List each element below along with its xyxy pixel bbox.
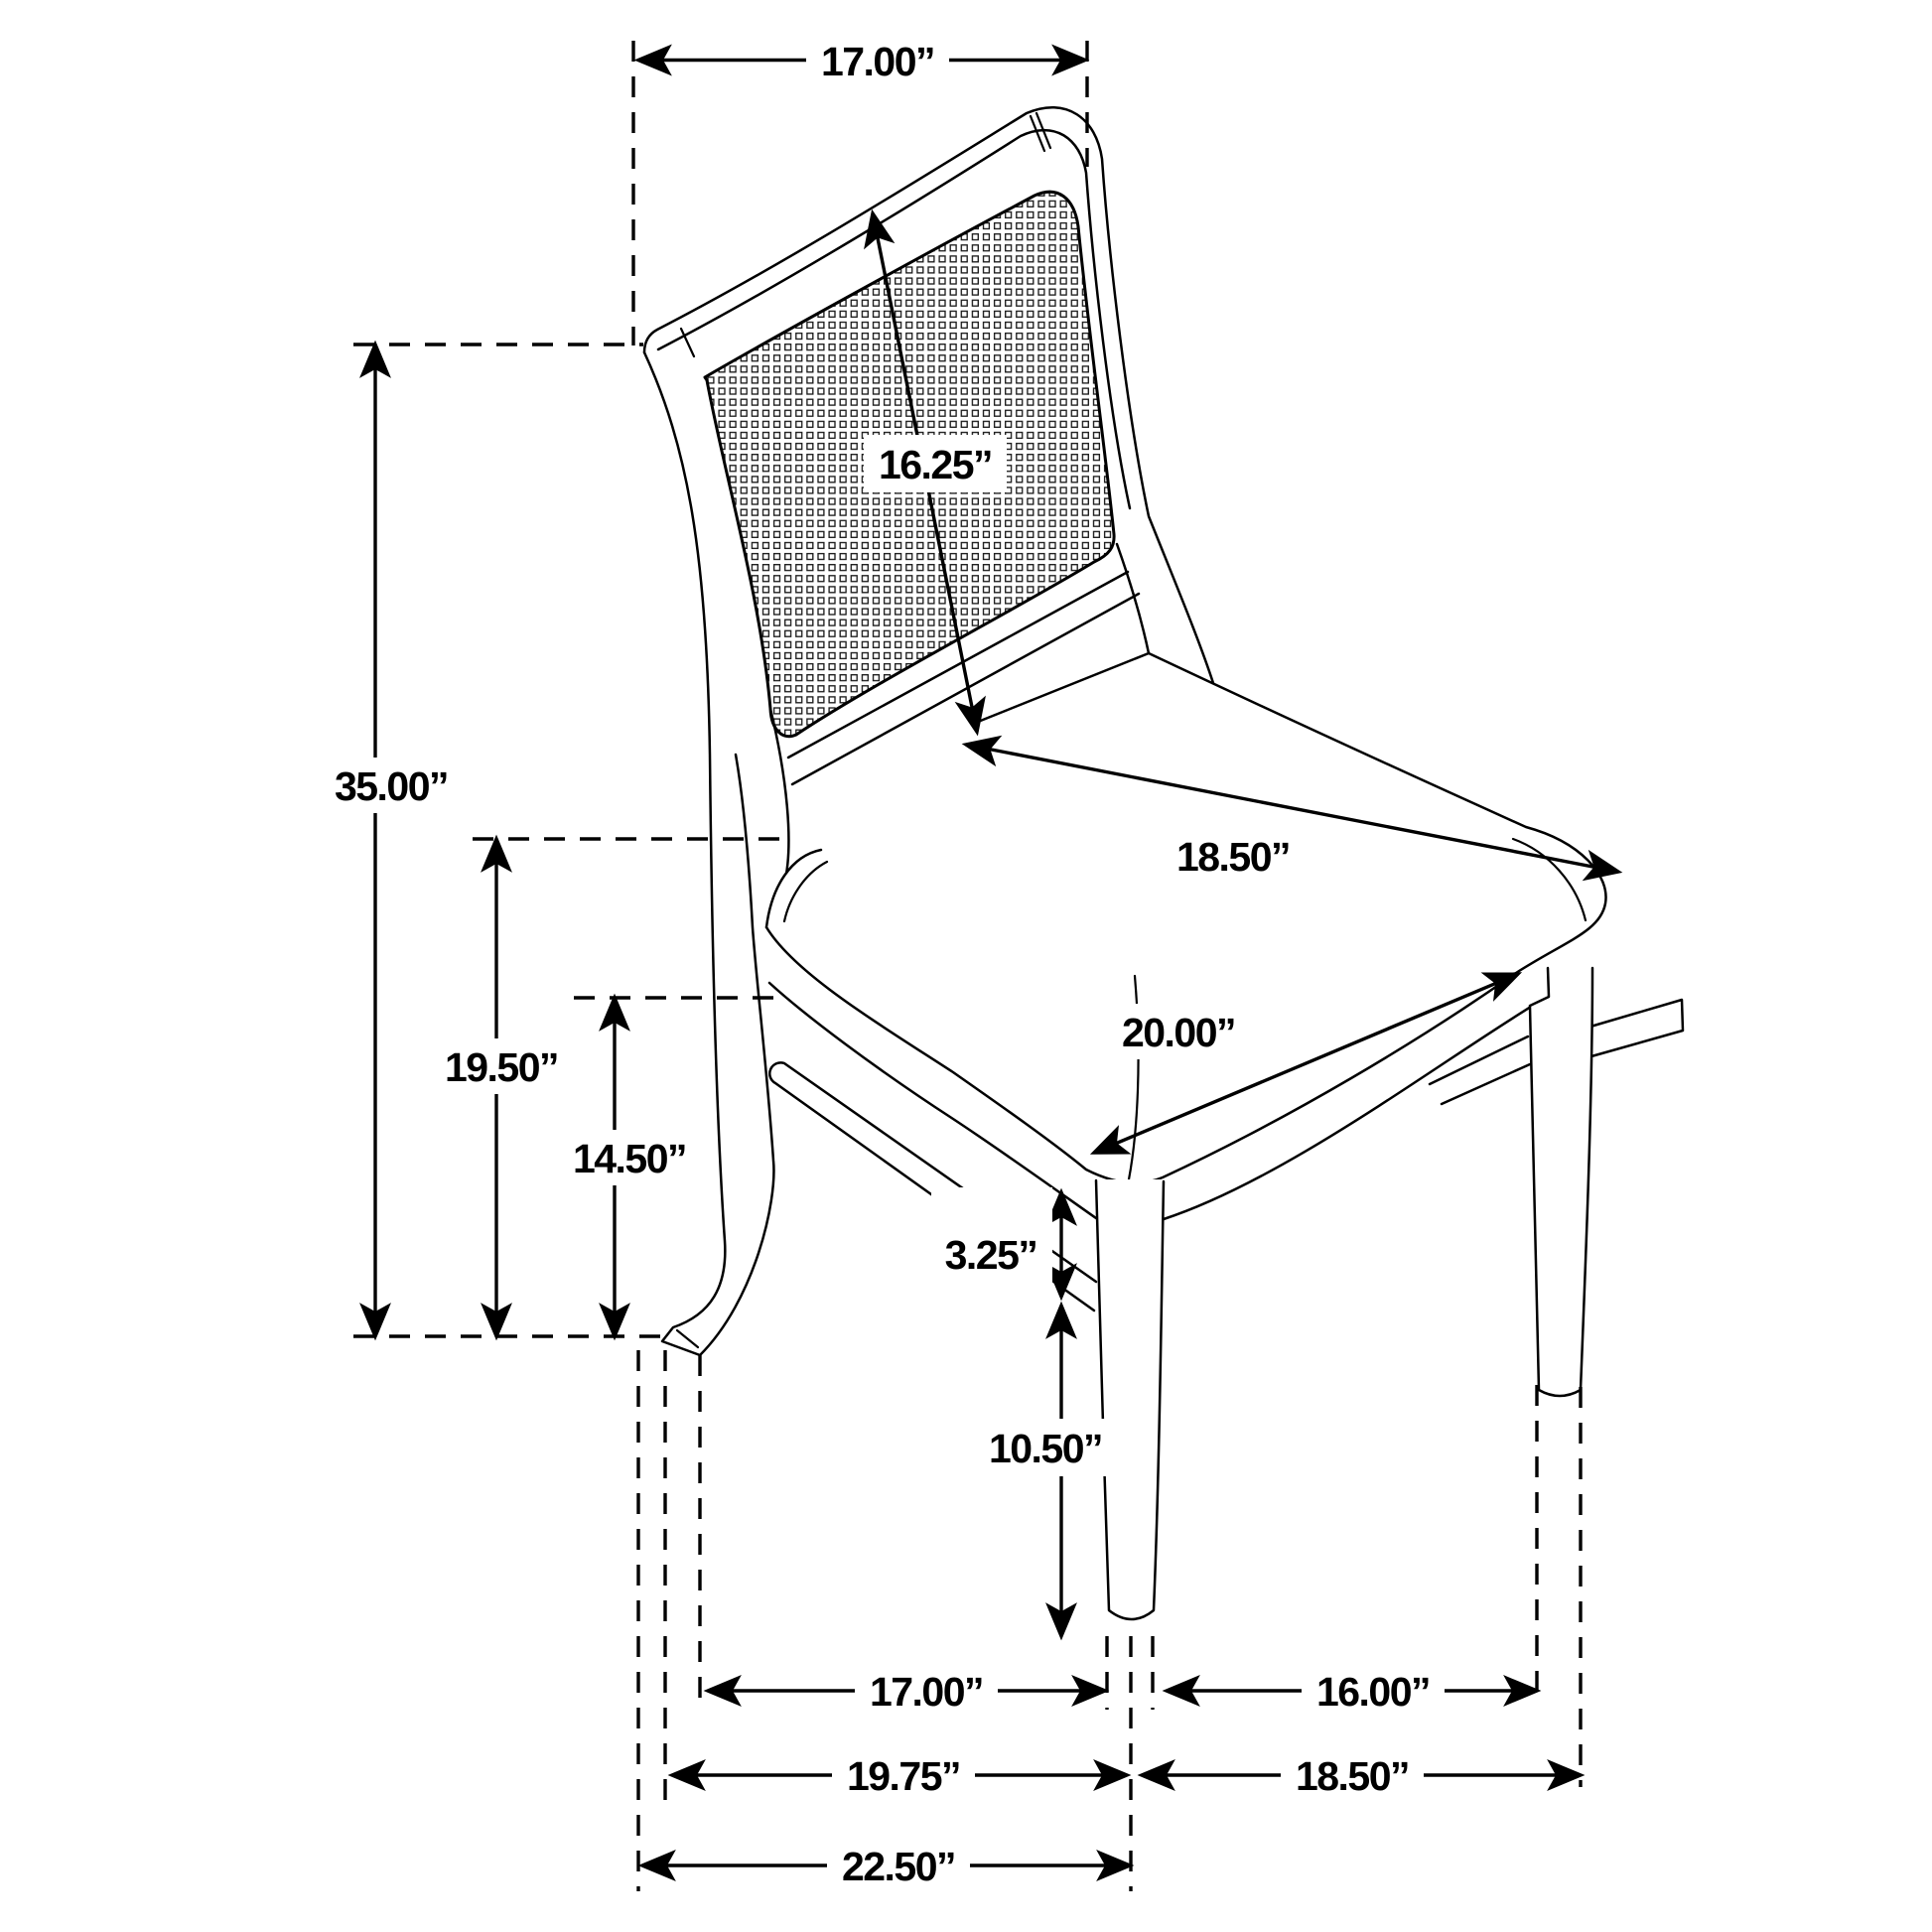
svg-text:17.00”: 17.00”	[870, 1669, 983, 1715]
svg-text:17.00”: 17.00”	[821, 39, 934, 84]
svg-text:10.50”: 10.50”	[989, 1426, 1102, 1471]
svg-text:18.50”: 18.50”	[1296, 1753, 1409, 1799]
svg-text:19.75”: 19.75”	[847, 1753, 960, 1799]
svg-text:18.50”: 18.50”	[1176, 834, 1290, 880]
svg-text:16.00”: 16.00”	[1316, 1669, 1430, 1715]
svg-text:14.50”: 14.50”	[573, 1136, 686, 1181]
svg-text:16.25”: 16.25”	[879, 442, 992, 487]
svg-text:3.25”: 3.25”	[945, 1232, 1037, 1278]
svg-text:20.00”: 20.00”	[1122, 1010, 1235, 1055]
svg-text:35.00”: 35.00”	[335, 763, 448, 809]
svg-text:22.50”: 22.50”	[842, 1844, 955, 1889]
svg-text:19.50”: 19.50”	[445, 1044, 558, 1090]
